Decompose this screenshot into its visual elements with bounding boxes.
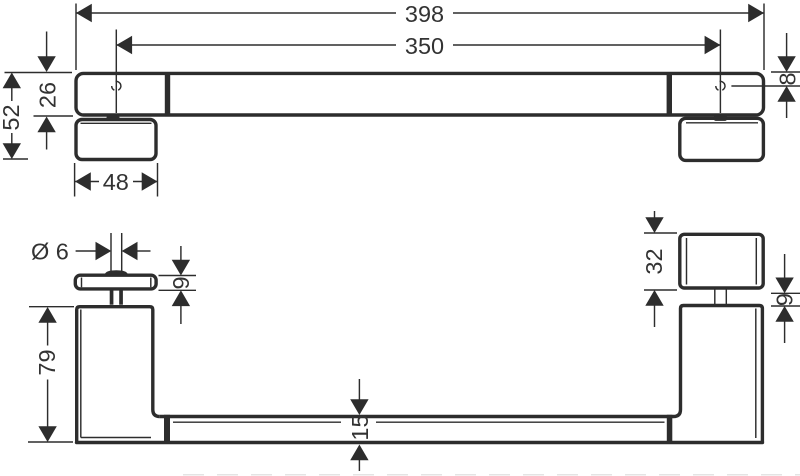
svg-text:Ø 6: Ø 6	[31, 239, 69, 265]
svg-text:350: 350	[405, 33, 444, 59]
svg-text:398: 398	[405, 1, 444, 27]
svg-text:79: 79	[34, 349, 60, 375]
svg-text:9: 9	[772, 293, 798, 306]
svg-text:32: 32	[641, 248, 667, 274]
svg-text:15: 15	[347, 414, 373, 440]
svg-text:8: 8	[775, 72, 800, 85]
svg-text:52: 52	[0, 104, 24, 130]
svg-text:26: 26	[35, 82, 61, 108]
svg-text:9: 9	[168, 276, 194, 289]
svg-text:48: 48	[103, 169, 129, 195]
